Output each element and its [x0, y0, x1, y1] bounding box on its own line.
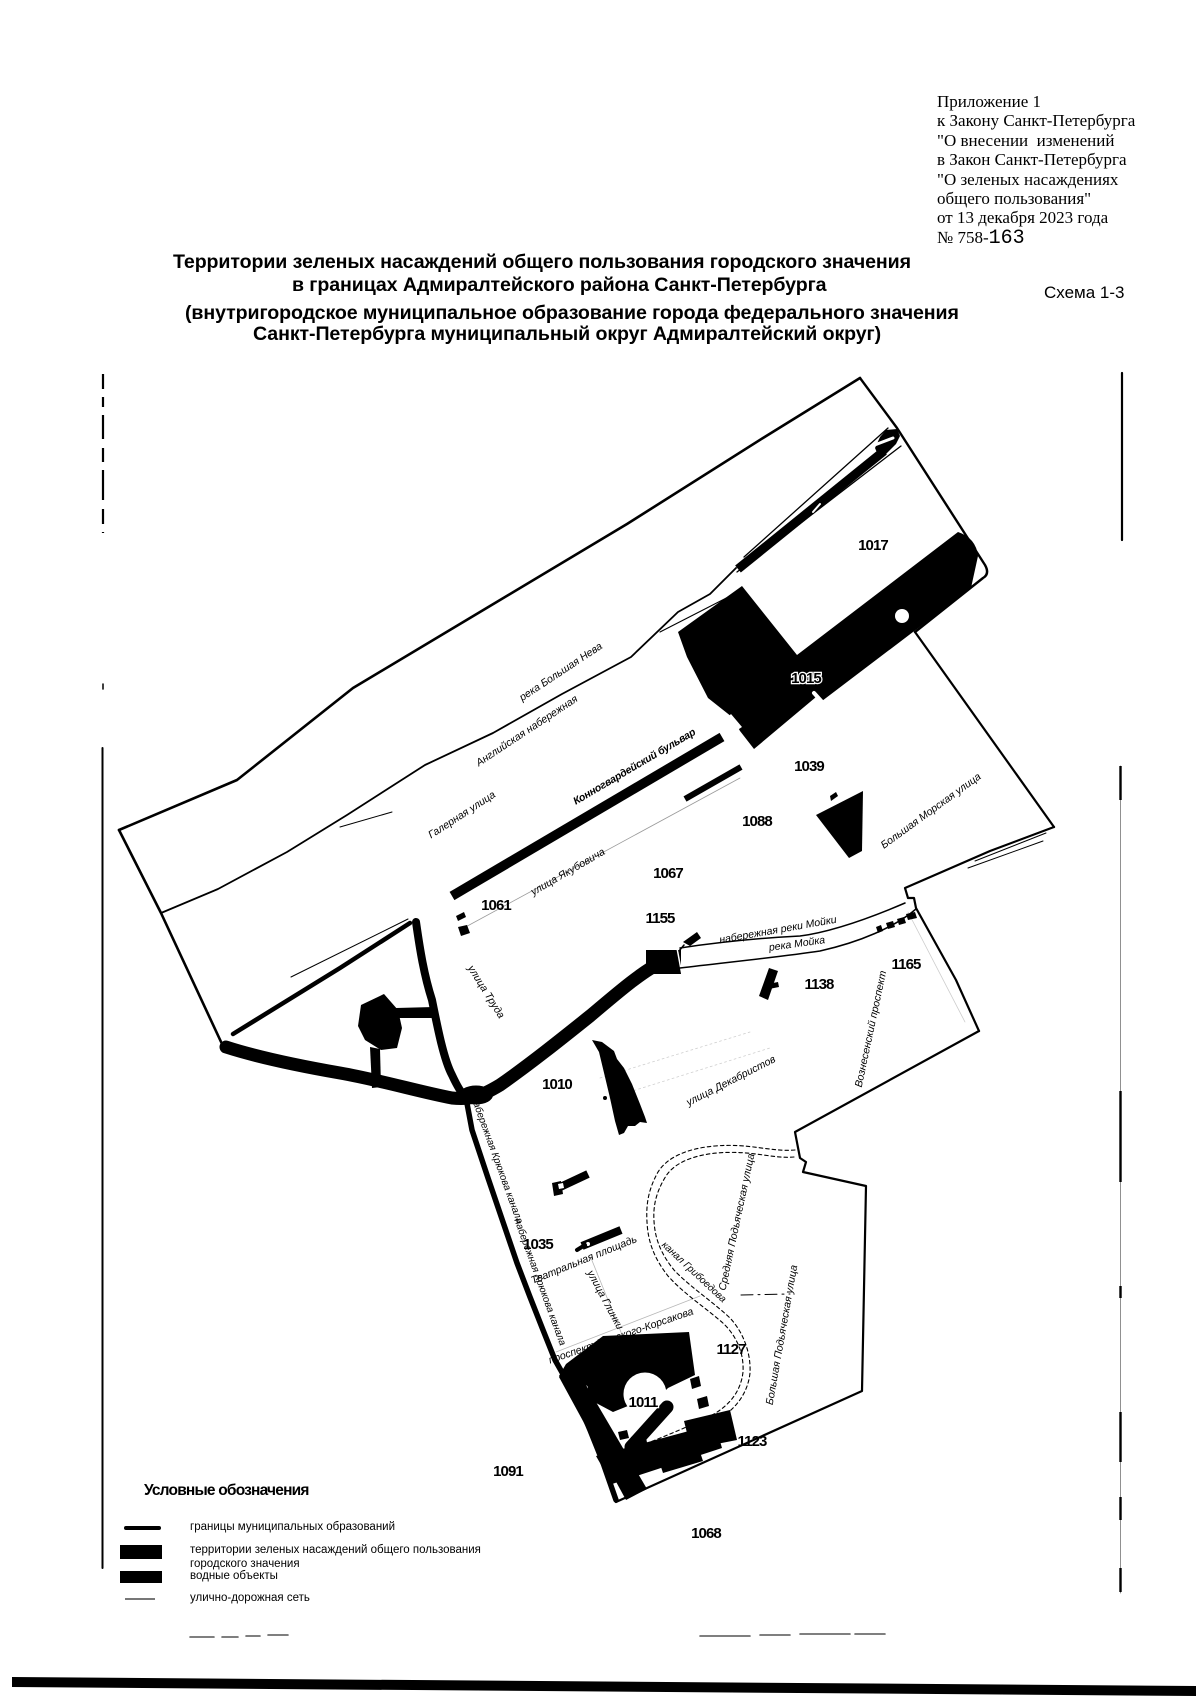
svg-text:Большая Морская улица: Большая Морская улица [879, 771, 984, 852]
svg-text:канал Грибоедова: канал Грибоедова [659, 1239, 729, 1305]
svg-text:1017: 1017 [858, 537, 888, 554]
svg-text:1068: 1068 [691, 1525, 721, 1542]
svg-text:1123: 1123 [738, 1433, 767, 1450]
svg-text:Вознесенский проспект: Вознесенский проспект [853, 969, 890, 1088]
svg-text:1039: 1039 [794, 758, 824, 775]
svg-text:1138: 1138 [805, 976, 834, 993]
svg-text:Средняя Подьяческая улица: Средняя Подьяческая улица [717, 1152, 758, 1291]
svg-text:1155: 1155 [646, 910, 675, 927]
svg-text:1127: 1127 [717, 1341, 746, 1358]
svg-text:1011: 1011 [629, 1394, 658, 1411]
svg-text:улица Декабристов: улица Декабристов [683, 1053, 778, 1109]
svg-text:1091: 1091 [493, 1463, 523, 1480]
svg-text:1015: 1015 [791, 670, 821, 687]
svg-text:1165: 1165 [892, 956, 921, 973]
svg-text:Английская набережная: Английская набережная [473, 693, 580, 770]
svg-text:Большая Подьяческая улица: Большая Подьяческая улица [764, 1264, 800, 1406]
svg-text:1088: 1088 [742, 813, 772, 830]
svg-text:улица Труда: улица Труда [464, 962, 507, 1020]
svg-text:1061: 1061 [481, 897, 511, 914]
svg-text:Галерная улица: Галерная улица [426, 789, 498, 841]
svg-text:1067: 1067 [653, 865, 683, 882]
svg-text:1035: 1035 [523, 1236, 553, 1253]
svg-text:1010: 1010 [542, 1076, 572, 1093]
svg-text:улица Глинки: улица Глинки [584, 1267, 626, 1331]
svg-text:улица Якубовича: улица Якубовича [528, 846, 607, 899]
